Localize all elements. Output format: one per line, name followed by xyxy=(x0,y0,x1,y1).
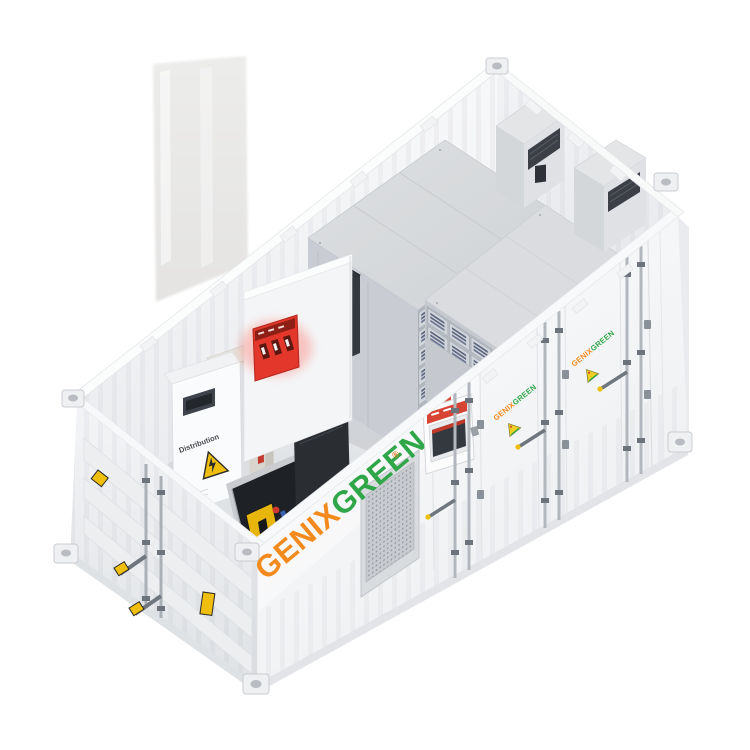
hazard-sticker xyxy=(200,592,215,615)
corner-casting xyxy=(243,674,269,694)
energy-storage-container-render: Distribution xyxy=(0,0,750,750)
corner-casting xyxy=(62,390,84,407)
corner-casting xyxy=(54,544,78,563)
corner-casting xyxy=(654,173,678,191)
product-render-canvas: Distribution xyxy=(0,0,750,750)
corner-casting xyxy=(486,58,508,74)
corner-casting xyxy=(235,543,259,561)
corner-casting xyxy=(668,432,692,452)
hatch-red-valve xyxy=(273,507,280,514)
open-roof-panel xyxy=(153,56,248,302)
